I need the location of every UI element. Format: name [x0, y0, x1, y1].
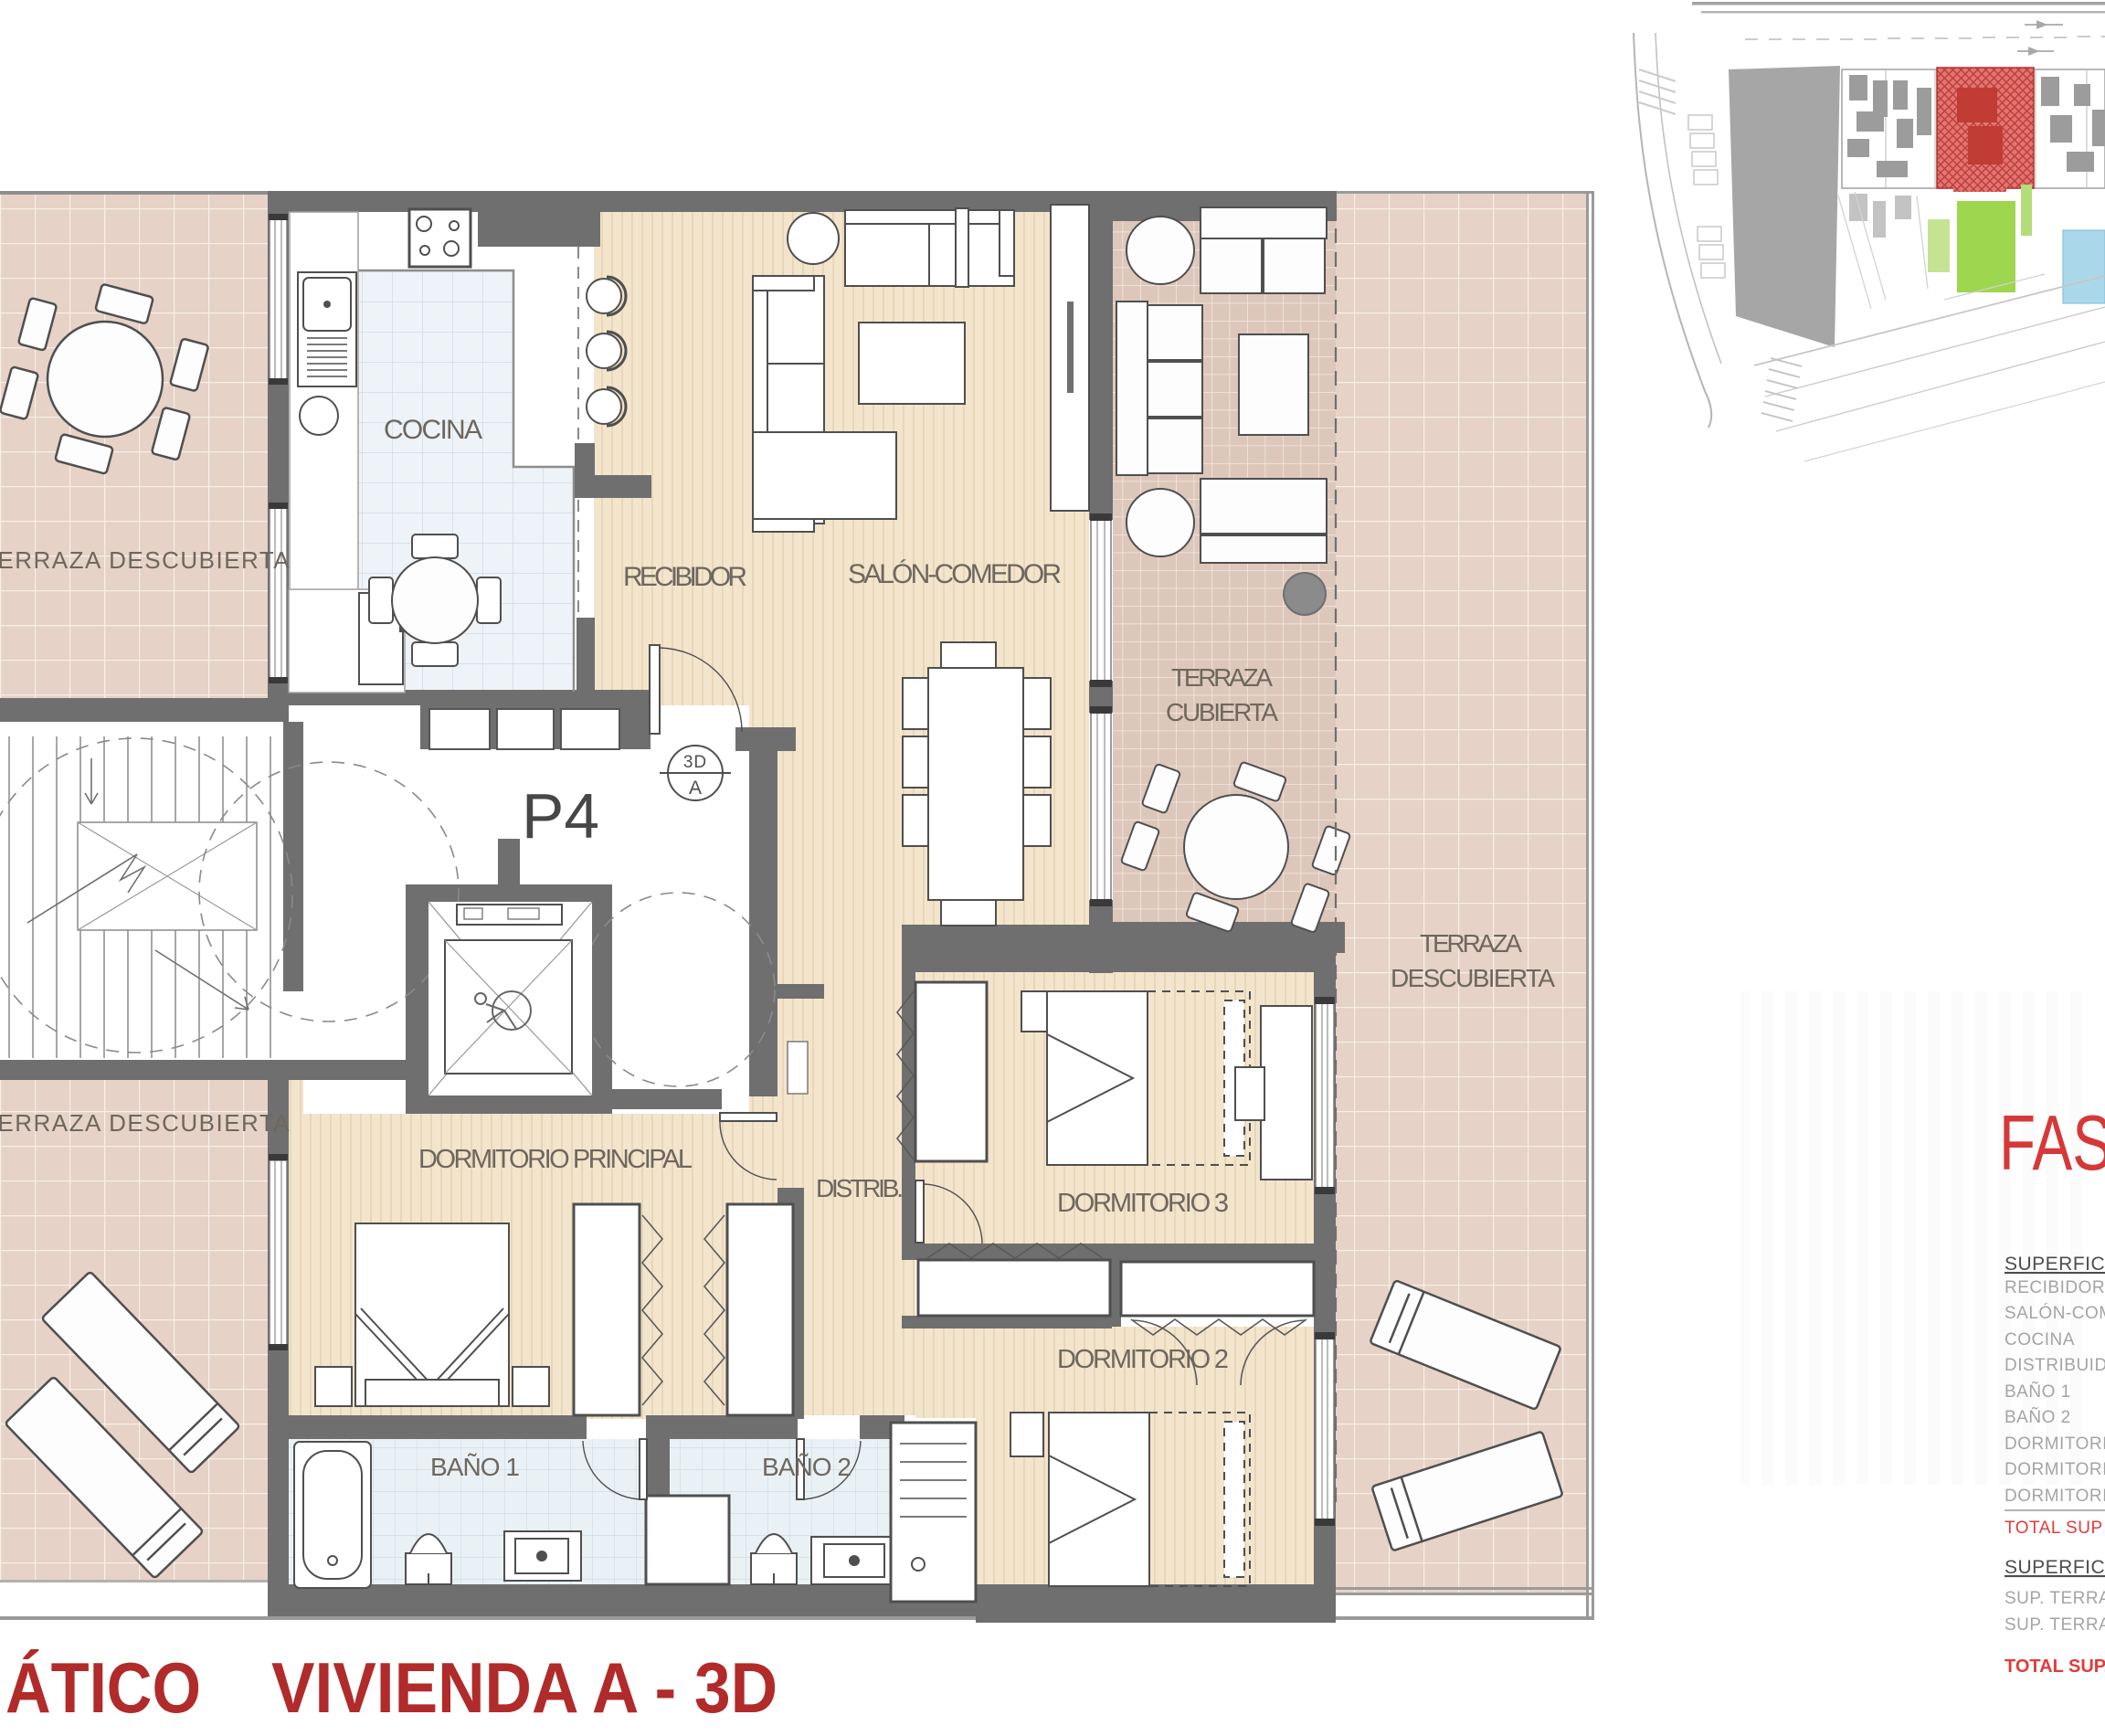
svg-text:DORMITORIO 2: DORMITORIO 2 — [2005, 1460, 2105, 1479]
svg-text:COCINA: COCINA — [384, 415, 482, 445]
svg-text:BAÑO 2: BAÑO 2 — [2005, 1407, 2071, 1427]
svg-text:TOTAL SUP ÚTIL: TOTAL SUP ÚTIL — [2005, 1518, 2105, 1538]
svg-text:DORMITORIO 3: DORMITORIO 3 — [1057, 1189, 1229, 1218]
svg-text:DISTRIB.: DISTRIB. — [816, 1174, 904, 1202]
svg-text:FAS: FAS — [1999, 1100, 2105, 1187]
svg-text:BAÑO 1: BAÑO 1 — [430, 1453, 520, 1481]
svg-text:P4: P4 — [522, 780, 599, 852]
svg-text:DORMITORIO 2: DORMITORIO 2 — [1057, 1345, 1229, 1374]
svg-text:ÁTICO: ÁTICO — [5, 1647, 201, 1728]
svg-text:DORMITORIO 3: DORMITORIO 3 — [2005, 1487, 2105, 1506]
svg-text:DESCUBIERTA: DESCUBIERTA — [1391, 964, 1555, 992]
svg-text:RECIBIDOR: RECIBIDOR — [2005, 1278, 2105, 1297]
svg-text:DISTRIBUIDOR: DISTRIBUIDOR — [2005, 1356, 2105, 1375]
svg-text:TERRAZA: TERRAZA — [1420, 929, 1522, 958]
svg-text:SUP. TERRAZA CUB: SUP. TERRAZA CUB — [2005, 1589, 2105, 1608]
svg-text:SUPERFICIES ÚTILES: SUPERFICIES ÚTILES — [2005, 1254, 2105, 1275]
svg-text:TOTAL SUP.CONS: TOTAL SUP.CONS — [2005, 1657, 2105, 1677]
svg-text:VIVIENDA A - 3D: VIVIENDA A - 3D — [271, 1647, 777, 1728]
svg-text:SALÓN-COMEDOR: SALÓN-COMEDOR — [848, 559, 1062, 589]
svg-text:RECIBIDOR: RECIBIDOR — [623, 562, 747, 592]
svg-text:DORMITORIO 1: DORMITORIO 1 — [2005, 1434, 2105, 1454]
svg-text:BAÑO 1: BAÑO 1 — [2005, 1381, 2071, 1402]
svg-text:COCINA: COCINA — [2005, 1330, 2075, 1350]
svg-text:3D: 3D — [683, 753, 707, 772]
svg-text:A: A — [689, 778, 702, 799]
svg-text:TERRAZA DESCUBIERTA: TERRAZA DESCUBIERTA — [0, 546, 291, 574]
svg-text:SUPERFICIES CONS: SUPERFICIES CONS — [2005, 1557, 2105, 1578]
svg-text:CUBIERTA: CUBIERTA — [1166, 698, 1278, 726]
svg-text:DORMITORIO PRINCIPAL: DORMITORIO PRINCIPAL — [418, 1145, 693, 1174]
svg-text:BAÑO 2: BAÑO 2 — [762, 1453, 852, 1481]
svg-text:SALÓN-COMEDOR: SALÓN-COMEDOR — [2005, 1303, 2105, 1323]
svg-text:TERRAZA: TERRAZA — [1171, 663, 1273, 692]
svg-text:SUP. TERRAZA DES: SUP. TERRAZA DES — [2005, 1615, 2105, 1635]
svg-text:TERRAZA DESCUBIERTA: TERRAZA DESCUBIERTA — [0, 1109, 291, 1137]
